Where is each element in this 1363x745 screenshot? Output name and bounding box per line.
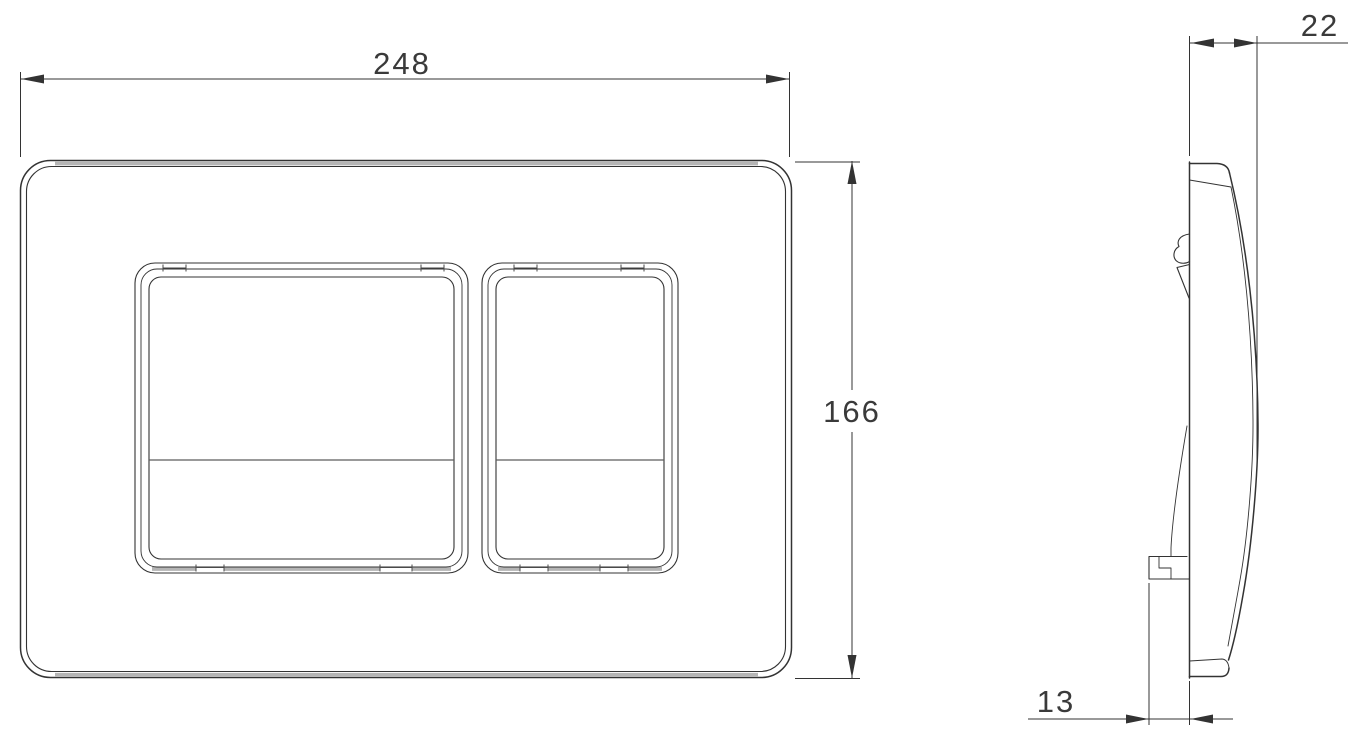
plate-outer-outline bbox=[21, 161, 792, 678]
dim-166-arrow-top bbox=[848, 161, 857, 184]
dim-248-arrow-left bbox=[21, 75, 44, 84]
dim-22-arrow-left bbox=[1191, 39, 1214, 48]
dimension-side-depth: 22 bbox=[1190, 8, 1349, 470]
dim-13-label: 13 bbox=[1037, 684, 1075, 719]
small-button-bottom-notch-2 bbox=[600, 565, 628, 574]
large-button-bottom-notch-2 bbox=[380, 565, 412, 574]
large-button-mid-outline bbox=[141, 269, 462, 567]
dimension-front-width: 248 bbox=[21, 46, 790, 157]
dim-13-arrow-left bbox=[1126, 715, 1149, 724]
dim-22-label: 22 bbox=[1301, 8, 1339, 43]
large-button-face-outline bbox=[149, 277, 454, 559]
dim-248-arrow-right bbox=[766, 75, 789, 84]
dim-166-label: 166 bbox=[823, 394, 881, 429]
large-button-top-mark-2 bbox=[421, 265, 444, 272]
small-button-top-mark-1 bbox=[514, 265, 537, 272]
side-bottom-cap-inner bbox=[1190, 659, 1230, 668]
small-button-top-mark-2 bbox=[621, 265, 644, 272]
large-flush-button bbox=[135, 263, 468, 574]
side-support-curve bbox=[1171, 426, 1187, 556]
flush-plate-drawing: 248 166 22 13 bbox=[0, 0, 1363, 745]
dim-166-arrow-bottom bbox=[848, 655, 857, 678]
small-button-outer-outline bbox=[482, 263, 678, 573]
side-clip-hook bbox=[1174, 234, 1190, 263]
dim-248-label: 248 bbox=[373, 46, 431, 81]
dim-13-arrow-right bbox=[1191, 715, 1214, 724]
large-button-bottom-notch-1 bbox=[196, 565, 224, 574]
side-top-cap bbox=[1190, 164, 1230, 174]
small-button-mid-outline bbox=[488, 269, 672, 567]
front-view bbox=[21, 161, 792, 678]
side-clip-latch bbox=[1177, 265, 1190, 299]
side-front-face-outer bbox=[1229, 173, 1259, 660]
dim-22-arrow-right bbox=[1234, 39, 1257, 48]
side-bracket-notch bbox=[1159, 557, 1171, 579]
side-front-face-inner bbox=[1228, 187, 1253, 646]
dimension-side-bracket-offset: 13 bbox=[1028, 583, 1233, 725]
large-button-top-mark-1 bbox=[163, 265, 186, 272]
large-button-outer-outline bbox=[135, 263, 468, 573]
side-view bbox=[1149, 162, 1258, 678]
side-bottom-cap bbox=[1190, 668, 1230, 677]
side-top-cap-inner bbox=[1190, 180, 1232, 187]
dimension-front-height: 166 bbox=[795, 161, 881, 679]
small-button-face-outline bbox=[496, 277, 664, 559]
small-button-bottom-notch-1 bbox=[520, 565, 548, 574]
technical-drawing-canvas: 248 166 22 13 bbox=[0, 0, 1363, 745]
small-flush-button bbox=[482, 263, 678, 574]
